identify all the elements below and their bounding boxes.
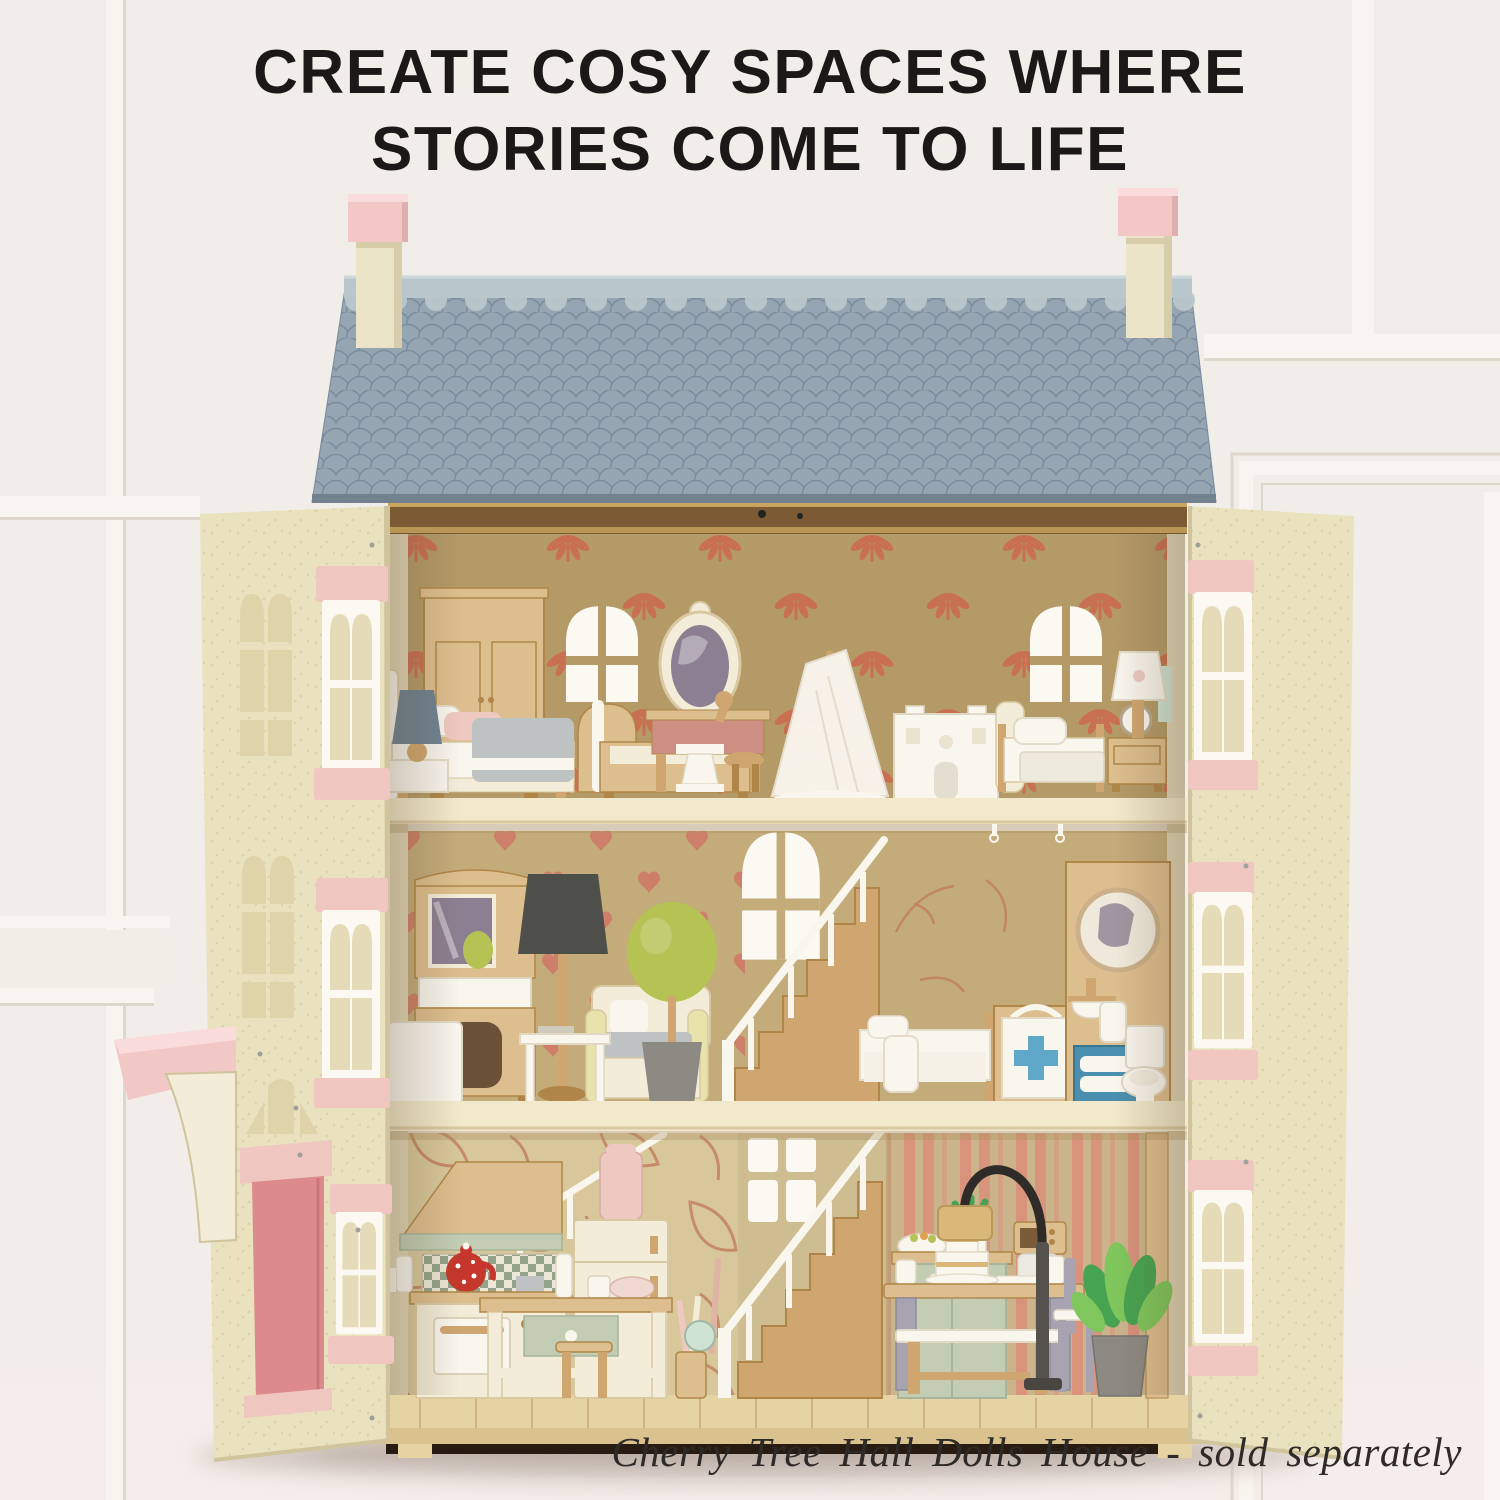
product-caption: Cherry Tree Hall Dolls House - sold sepa… [611,1428,1462,1476]
toy-dollhouse [894,706,998,800]
wall-rail-left [0,496,200,518]
bench [896,1330,1060,1342]
chimney-right [1118,188,1178,338]
wall-stile-left [106,0,124,1500]
nursery-floor [382,533,1172,809]
scalloped-shingles [312,282,1216,502]
chimney-left [348,194,408,348]
roof-fascia [388,500,1187,534]
roof [312,276,1216,503]
nursery-window-left [566,606,638,702]
kitchen-dining-floor [366,1124,1204,1458]
headline-line-1: CREATE COSY SPACES WHERE [0,34,1500,111]
headline: CREATE COSY SPACES WHERE STORIES COME TO… [0,34,1500,188]
living-bath-floor [388,831,1170,1104]
product-photo-canvas: CREATE COSY SPACES WHERE STORIES COME TO… [0,0,1500,1500]
porch-canopy [114,1026,236,1242]
wall-baseboard-left [0,916,170,928]
facade-door-right [1188,506,1354,1458]
exterior-window-middle-left [314,878,390,1108]
nursery-window-right [1030,606,1102,702]
exterior-window-upper-left [314,566,390,800]
exterior-window-upper-right [1188,560,1258,790]
dollhouse-interior [366,500,1204,1458]
exterior-window-middle-right [1188,862,1258,1080]
fanlight [268,1079,294,1134]
headline-line-2: STORIES COME TO LIFE [0,111,1500,188]
dining-table [884,1284,1084,1298]
dollhouse-scene [0,0,1500,1500]
